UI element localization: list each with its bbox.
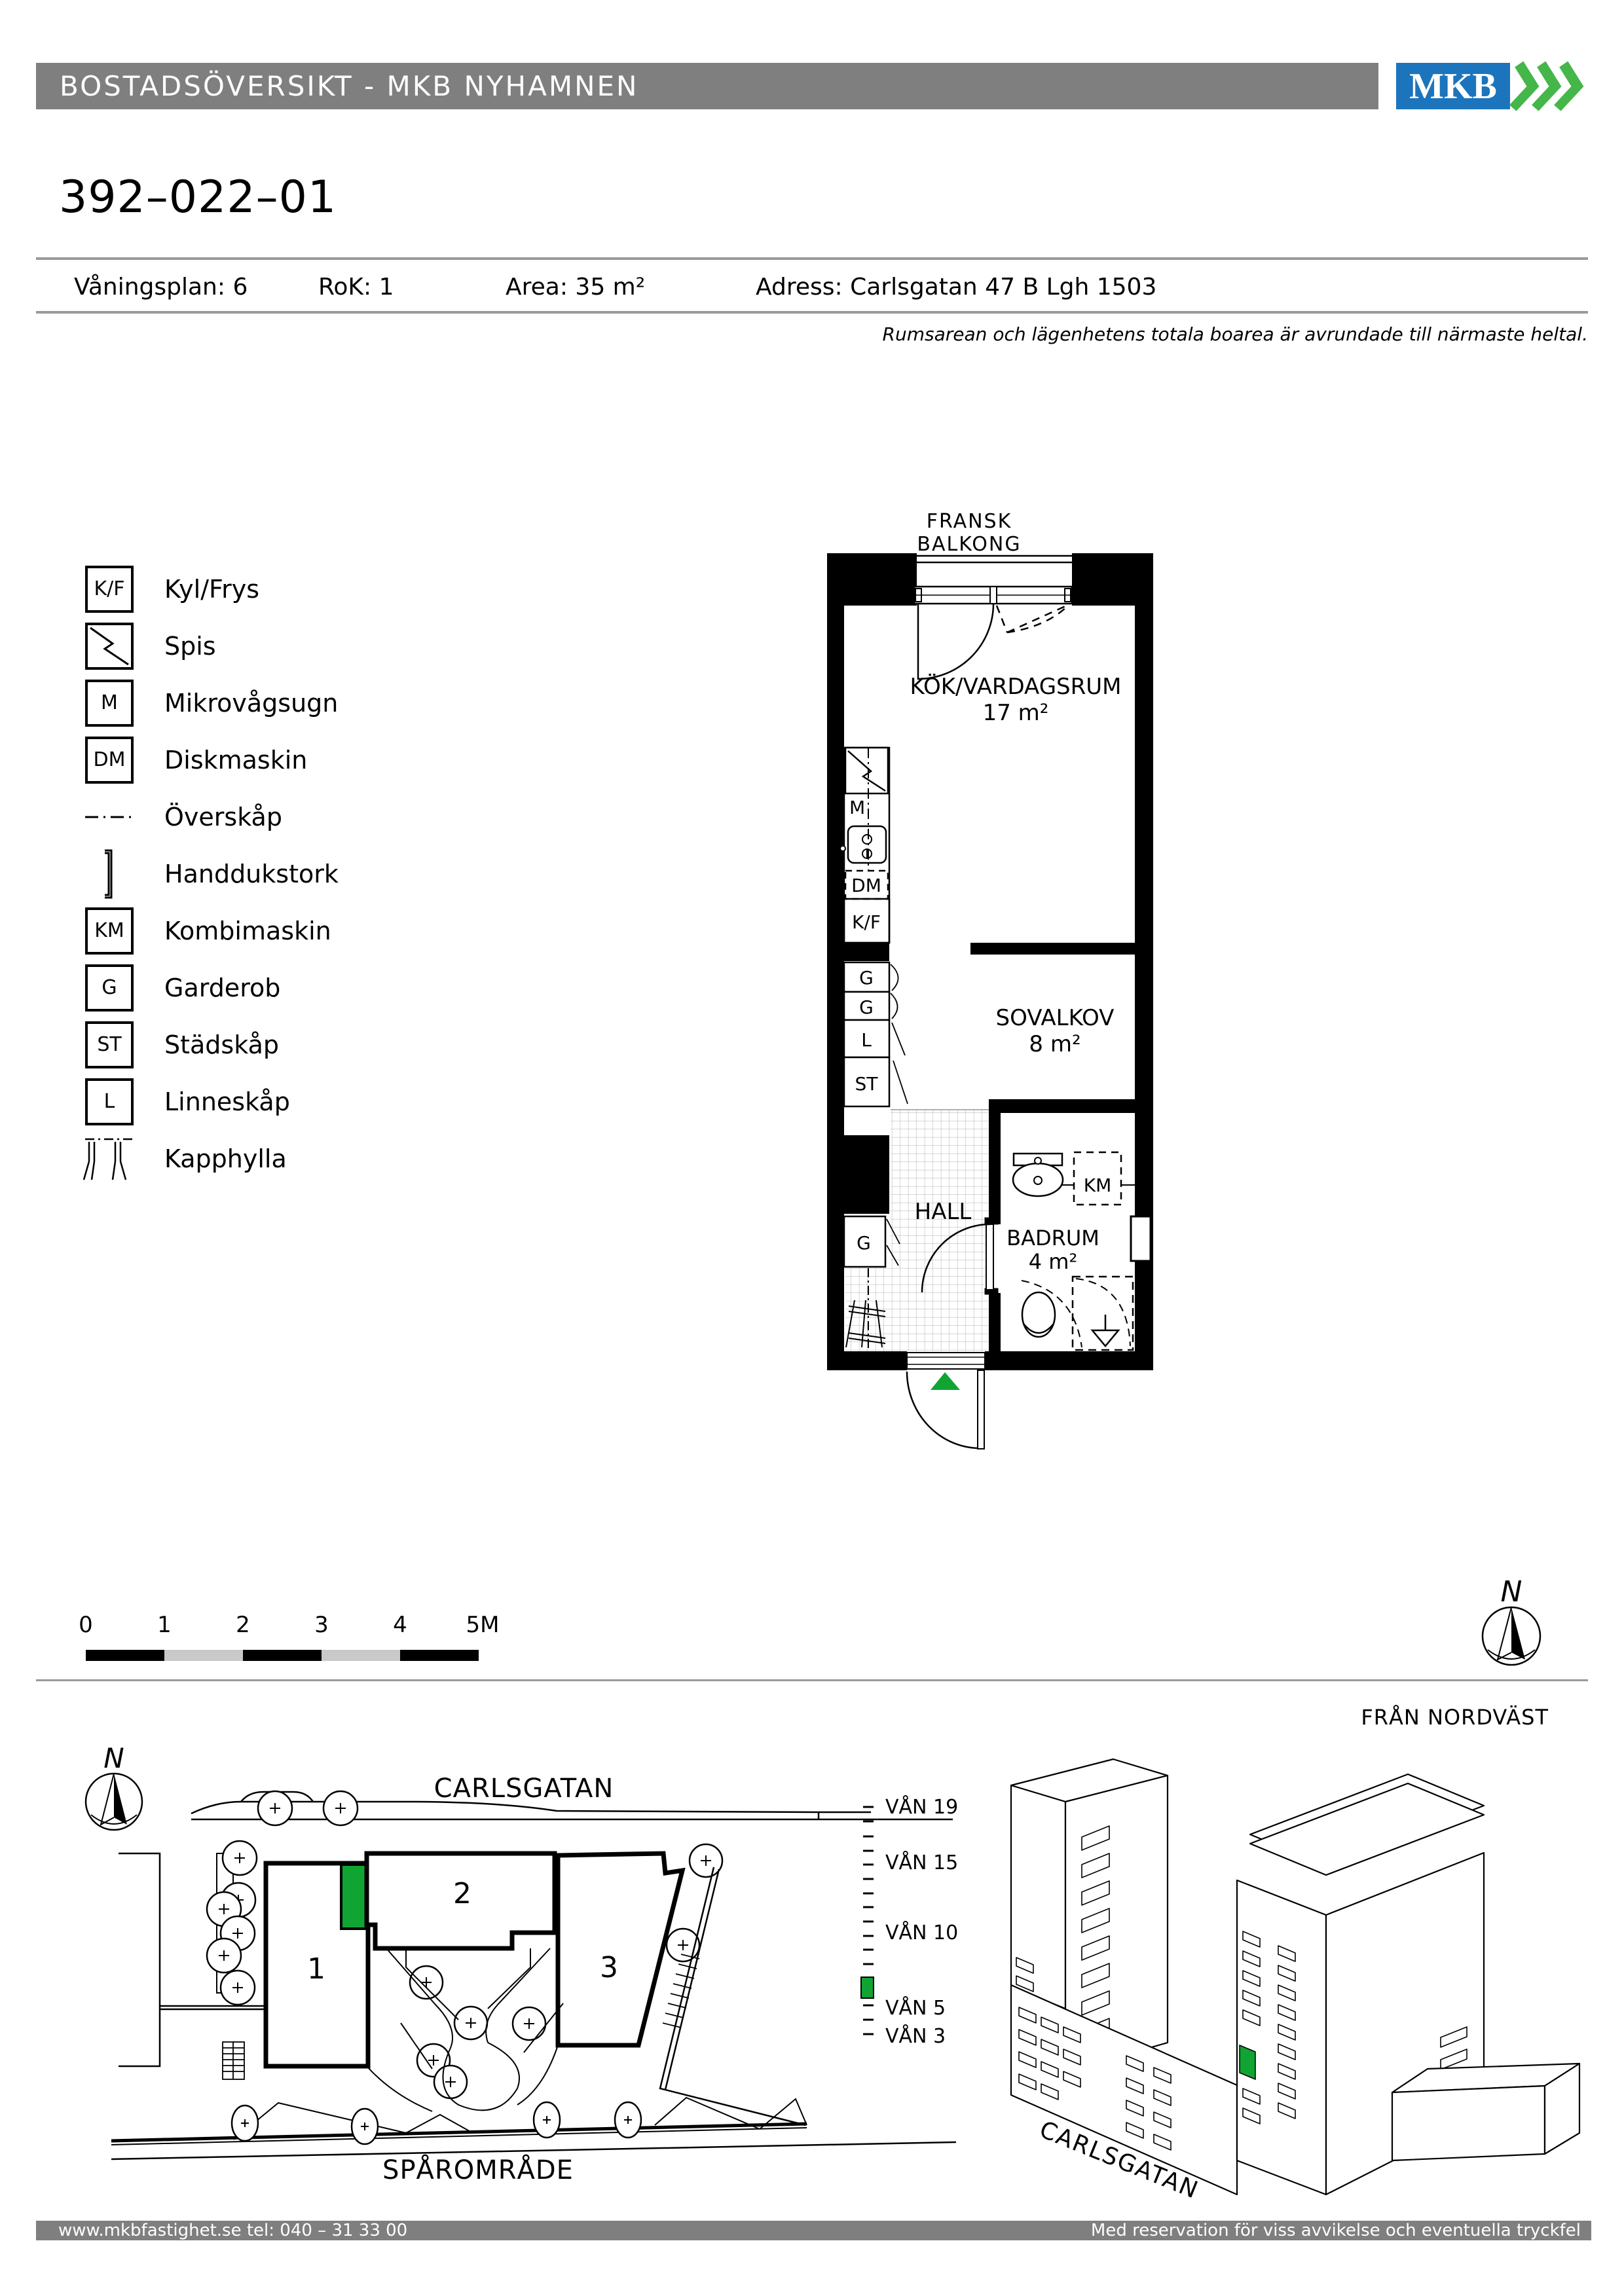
- area-info: Area: 35 m²: [506, 274, 645, 301]
- floor-10-label: VÅN 10: [885, 1921, 958, 1944]
- rok-info: RoK: 1: [318, 274, 394, 301]
- site-north-arrow: N: [86, 1742, 142, 1830]
- legend-row-kombimaskin: KM Kombimaskin: [85, 902, 339, 959]
- entrance-arrow-icon: [931, 1372, 960, 1390]
- alcove-label: SOVALKOV: [996, 1005, 1115, 1031]
- microwave-icon: M: [85, 680, 134, 727]
- mkb-logo-chevrons-icon: [1510, 63, 1589, 109]
- scale-4: 4: [393, 1612, 407, 1638]
- footer-bar: www.mkbfastighet.se tel: 040 – 31 33 00 …: [36, 2221, 1591, 2240]
- floor-plan-document: { "header": { "title": "BOSTADSÖVERSIKT …: [0, 0, 1624, 2296]
- header-bar: BOSTADSÖVERSIKT - MKB NYHAMNEN: [36, 63, 1378, 109]
- balcony-label-2: BALKONG: [917, 533, 1021, 556]
- fridge-freezer-icon: K/F: [85, 566, 134, 613]
- kitchen-label: KÖK/VARDAGSRUM: [910, 673, 1122, 700]
- dishwasher-label: DM: [851, 875, 881, 896]
- annex: [1392, 2064, 1579, 2160]
- footer-contact: www.mkbfastighet.se tel: 040 – 31 33 00: [58, 2221, 407, 2240]
- wardrobe2-label: G: [859, 996, 874, 1018]
- view-direction-label: FRÅN NORDVÄST: [1361, 1705, 1549, 1730]
- footer-disclaimer: Med reservation för viss avvikelse och e…: [1091, 2221, 1581, 2240]
- floor-19-label: VÅN 19: [885, 1795, 958, 1819]
- wardrobe3-label: G: [857, 1232, 871, 1254]
- document-title: BOSTADSÖVERSIKT - MKB NYHAMNEN: [60, 70, 638, 102]
- floor-5-label: VÅN 5: [885, 1996, 946, 2020]
- linen-cabinet-icon: L: [85, 1078, 134, 1125]
- bathroom-area: 4 m²: [1029, 1249, 1078, 1274]
- legend-row-mikro: M Mikrovågsugn: [85, 674, 339, 731]
- site-plan: N CARLSGATAN 1 2: [39, 1715, 812, 2226]
- apartment-id: 392–022–01: [59, 172, 337, 223]
- microwave-label: M: [849, 797, 865, 818]
- building-elevation: VÅN 19 VÅN 15 VÅN 10 VÅN 5 VÅN 3: [838, 1728, 1604, 2226]
- floor-3-label: VÅN 3: [885, 2024, 946, 2048]
- linen-label: L: [861, 1029, 872, 1051]
- divider-top: [36, 257, 1588, 260]
- legend-row-diskmaskin: DM Diskmaskin: [85, 731, 339, 788]
- fridge-label: K/F: [852, 911, 881, 933]
- scale-0: 0: [79, 1612, 93, 1638]
- floor-15-label: VÅN 15: [885, 1851, 958, 1874]
- coat-rack-icon: [85, 1135, 134, 1182]
- symbol-legend: K/F Kyl/Frys Spis M Mikrovågsugn DM Disk…: [85, 560, 339, 1187]
- scale-2: 2: [236, 1612, 250, 1638]
- apartment-location-marker: [341, 1865, 367, 1929]
- mkb-logo: MKB: [1396, 63, 1510, 109]
- address-info: Adress: Carlsgatan 47 B Lgh 1503: [756, 274, 1156, 301]
- legend-row-kapphylla: Kapphylla: [85, 1130, 339, 1187]
- cleaning-label: ST: [855, 1073, 879, 1095]
- entry-door: [907, 1353, 985, 1449]
- section-divider: [36, 1679, 1588, 1681]
- kitchen-area: 17 m²: [983, 700, 1049, 726]
- hall-label: HALL: [915, 1199, 972, 1225]
- elevation-apartment-marker: [1240, 2045, 1255, 2079]
- site-building-3: [558, 1853, 682, 2045]
- legend-row-stadskap: ST Städskåp: [85, 1016, 339, 1073]
- wardrobe-icon: G: [85, 964, 134, 1011]
- legend-row-garderob: G Garderob: [85, 959, 339, 1016]
- scale-1: 1: [157, 1612, 172, 1638]
- north-label: N: [1501, 1575, 1522, 1609]
- site-stairs-right: [663, 1954, 699, 2028]
- site-stairs-left: [223, 2042, 244, 2079]
- towel-rail-icon: [100, 848, 119, 900]
- svg-text:N: N: [103, 1742, 124, 1774]
- divider-info: [36, 311, 1588, 314]
- wardrobe1-label: G: [859, 967, 874, 989]
- legend-row-overskap: Överskåp: [85, 788, 339, 845]
- balcony-railing: [914, 556, 1074, 562]
- building-3-label: 3: [600, 1951, 618, 1984]
- building-1-label: 1: [307, 1952, 325, 1986]
- washer-label: KM: [1084, 1175, 1112, 1196]
- floor-info: Våningsplan: 6: [74, 274, 248, 301]
- apartment-floor-plan: FRANSK BALKONG: [812, 511, 1179, 1467]
- legend-row-handdukstork: Handdukstork: [85, 845, 339, 902]
- scale-3: 3: [314, 1612, 329, 1638]
- floor-marker: [861, 1977, 874, 1998]
- combi-machine-icon: KM: [85, 907, 134, 955]
- dash-dot-line-icon: [85, 814, 134, 820]
- building-2-label: 2: [453, 1877, 471, 1910]
- floor-scale: [863, 1807, 874, 2034]
- railway-label: SPÅROMRÅDE: [382, 2154, 574, 2185]
- cleaning-cabinet-icon: ST: [85, 1021, 134, 1068]
- bathroom-niche: [1131, 1216, 1151, 1261]
- bathroom-label: BADRUM: [1006, 1226, 1099, 1250]
- mkb-logo-text: MKB: [1409, 65, 1497, 107]
- street-label: CARLSGATAN: [434, 1774, 614, 1804]
- balcony-label-1: FRANSK: [927, 510, 1012, 533]
- dishwasher-icon: DM: [85, 737, 134, 784]
- legend-row-spis: Spis: [85, 617, 339, 674]
- stove-icon: [85, 623, 134, 670]
- north-arrow: N: [1473, 1571, 1552, 1669]
- legend-row-kylfrys: K/F Kyl/Frys: [85, 560, 339, 617]
- toilet: [1022, 1292, 1055, 1337]
- scale-5m: 5M: [466, 1612, 500, 1638]
- bathroom-sink: [1013, 1154, 1063, 1196]
- rounding-note: Rumsarean och lägenhetens totala boarea …: [883, 323, 1588, 345]
- french-balcony-door: [914, 587, 1072, 679]
- alcove-area: 8 m²: [1029, 1031, 1080, 1057]
- legend-row-linneskap: L Linneskåp: [85, 1073, 339, 1130]
